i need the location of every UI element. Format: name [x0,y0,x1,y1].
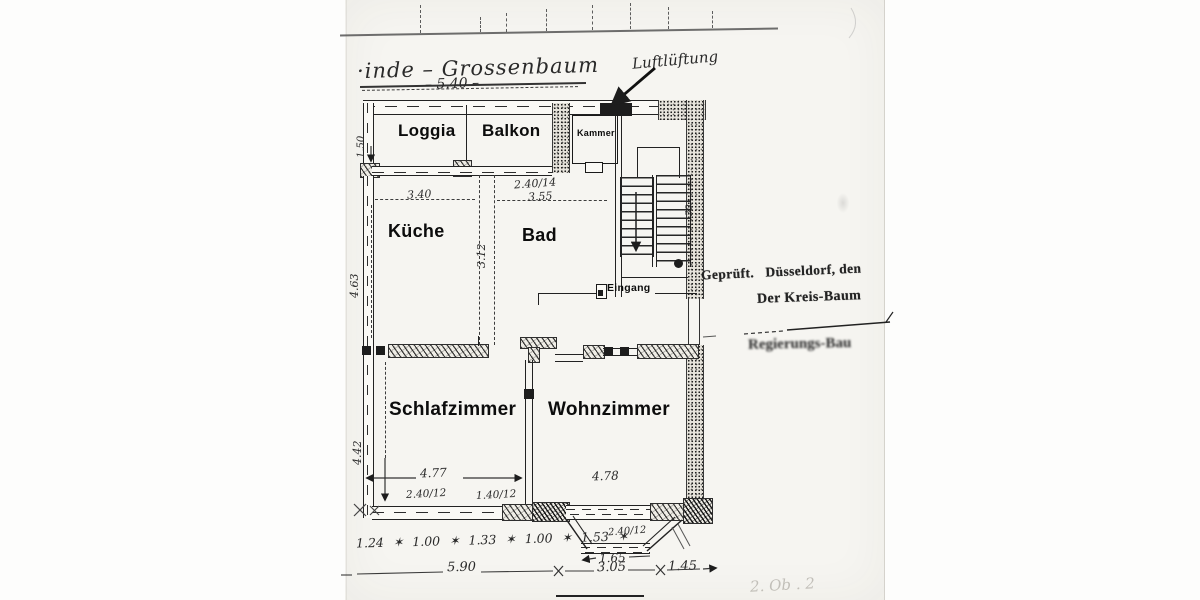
bay-side-stroke [672,527,684,549]
total-dim-line [357,572,443,574]
bay-wall-left-outer [566,519,587,549]
paper-mark [849,8,856,38]
total-dim-line [481,571,553,572]
vent-arrow [613,68,655,104]
bay-wall-left-inner [573,516,592,544]
bay-dim-dash [629,556,650,557]
stamp-underline-tick [886,312,893,322]
stamp-underline [787,322,890,330]
stamp-underline-dash [744,331,783,334]
total-dim-arrow [703,568,716,569]
stamp-underline-dot [703,336,716,337]
bay-dim-arrow [583,558,596,560]
floorplan-page: ·inde – Grossenbaum – 5.40 – Luftlüftung… [0,0,1200,600]
total-dim-line [667,569,700,570]
bay-side-stroke [678,524,690,546]
line-overlay [0,0,1200,600]
bay-wall-right-inner [643,517,675,546]
